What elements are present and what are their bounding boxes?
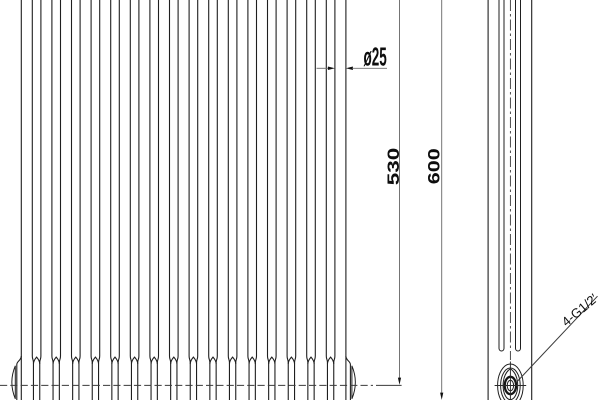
svg-text:ø25: ø25 <box>364 43 387 72</box>
svg-text:600: 600 <box>425 148 444 184</box>
svg-text:530: 530 <box>384 148 403 186</box>
